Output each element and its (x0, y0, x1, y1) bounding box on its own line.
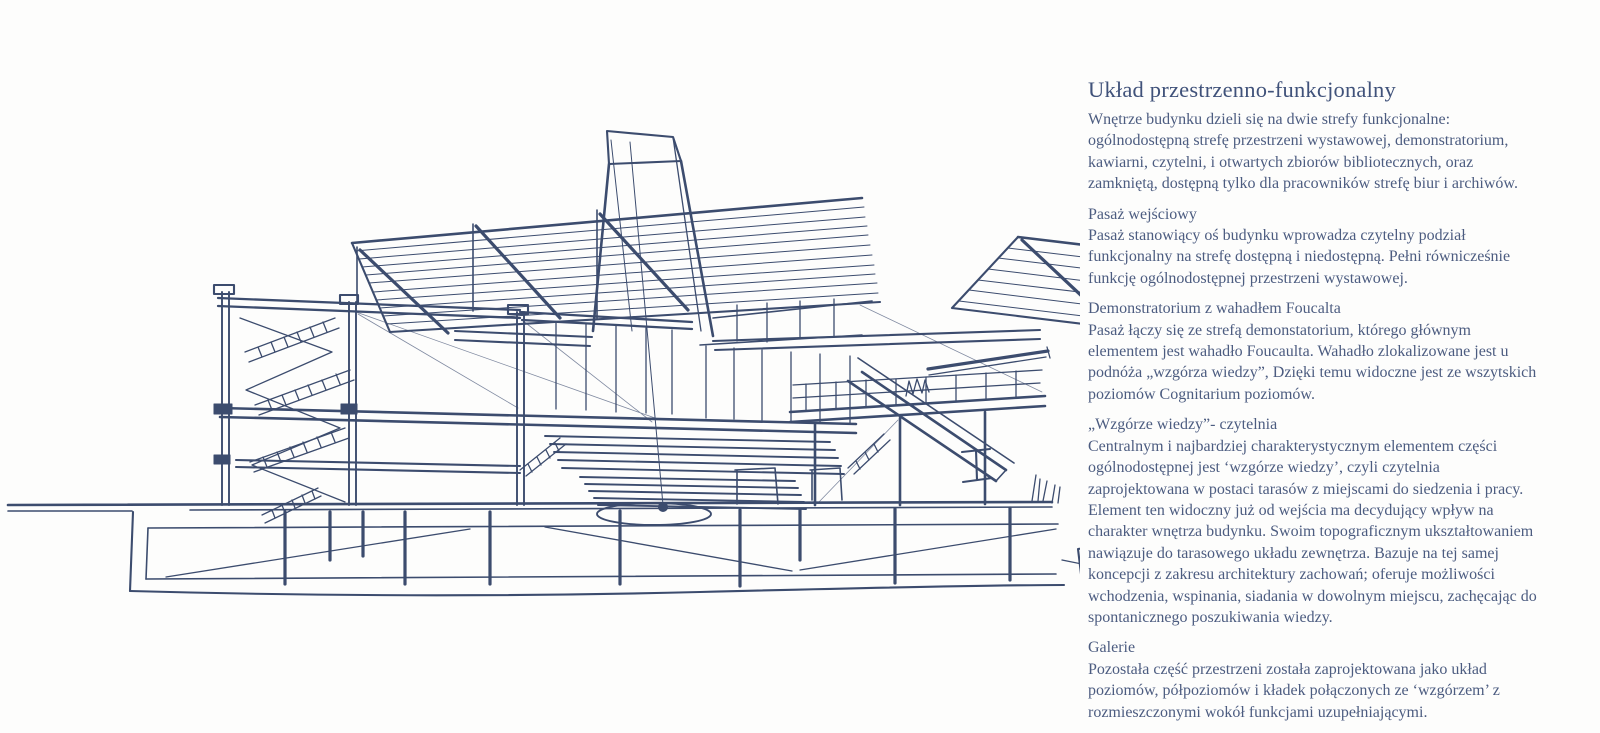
sketch-pendulum (597, 142, 711, 525)
section-wzgorze-wiedzy: „Wzgórze wiedzy”- czytelnia Centralnym i… (1088, 414, 1540, 628)
sketch-grass-tufts (1032, 475, 1060, 503)
sketch-right-gallery (790, 370, 1045, 505)
sketch-roof-left (352, 198, 880, 333)
intro-paragraph: Wnętrze budynku dzieli się na dwie stref… (1088, 109, 1540, 195)
section-heading: Pasaż wejściowy (1088, 204, 1540, 225)
section-heading: Demonstratorium z wahadłem Foucalta (1088, 298, 1540, 319)
sketch-tower-funnel (593, 131, 713, 336)
section-pasaz-wejsciowy: Pasaż wejściowy Pasaż stanowiący oś budy… (1088, 204, 1540, 290)
section-body: Pasaż łączy się ze strefą demonstatorium… (1088, 320, 1540, 406)
section-body: Pasaż stanowiący oś budynku wprowadza cz… (1088, 225, 1540, 289)
sketch-svg (0, 0, 1080, 733)
section-body: Pozostała część przestrzeni została zapr… (1088, 659, 1540, 723)
description-column: Układ przestrzenno-funkcjonalny Wnętrze … (1088, 76, 1540, 723)
section-heading: „Wzgórze wiedzy”- czytelnia (1088, 414, 1540, 435)
sketch-knowledge-hill-terraces (520, 434, 890, 509)
section-body: Centralnym i najbardziej charakterystycz… (1088, 436, 1540, 629)
sketch-center-structure (455, 299, 1042, 423)
architectural-section-sketch (0, 0, 1080, 733)
portfolio-page: { "page": { "background_color": "#fdfdfc… (0, 0, 1600, 733)
sketch-roof-right (952, 189, 1080, 332)
section-galerie: Galerie Pozostała część przestrzeni zost… (1088, 637, 1540, 723)
page-title: Układ przestrzenno-funkcjonalny (1088, 76, 1540, 103)
section-heading: Galerie (1088, 637, 1540, 658)
section-demonstratorium: Demonstratorium z wahadłem Foucalta Pasa… (1088, 298, 1540, 405)
